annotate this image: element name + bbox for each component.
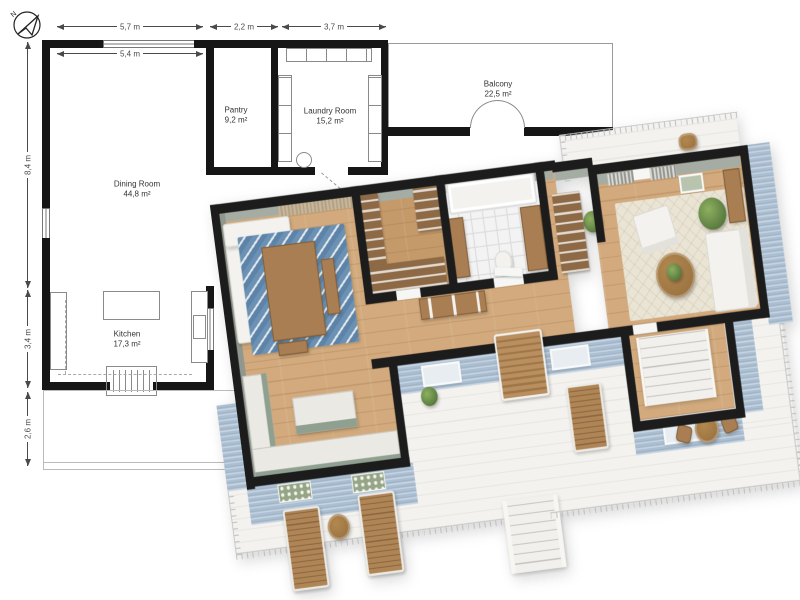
deck-stairs (502, 494, 567, 574)
floor-plan-canvas: N 5,7 m 2,2 m 3,7 m 5,4 m 8,4 m 3,4 m 2,… (0, 0, 800, 600)
room-area: 44,8 m² (114, 190, 160, 200)
room-area: 15,2 m² (304, 117, 356, 127)
laundry-counter-top (286, 48, 372, 62)
wall-pantry-laundry (271, 48, 278, 174)
wall-top-left (42, 40, 104, 48)
wall-balcony-left (385, 127, 470, 136)
room-name: Dining Room (114, 180, 160, 190)
room-name: Pantry (224, 106, 247, 116)
kitchen-island (292, 390, 357, 434)
dimension-label: 3,7 m (321, 23, 347, 32)
room-label-pantry: Pantry 9,2 m² (224, 106, 247, 127)
dimension-left-3: 2,6 m (27, 392, 28, 466)
kitchen-dashed-v (65, 300, 66, 374)
room-area: 22,5 m² (484, 90, 512, 100)
dimension-label: 2,2 m (231, 23, 257, 32)
wall-left-lower (42, 238, 50, 390)
kitchen-dashed-h (58, 374, 192, 375)
laundry-cabinet-left (278, 75, 292, 162)
wall-top-right (194, 40, 388, 48)
kitchen-sink-2d (193, 315, 206, 339)
wall-pantry-bottom (206, 167, 278, 175)
kitchen-island-2d (103, 291, 160, 320)
deck-outline-2d-inner (43, 462, 250, 463)
dimension-label: 2,6 m (24, 416, 33, 442)
dimension-left-1: 8,4 m (27, 42, 28, 288)
balcony-door-arc-right (497, 100, 525, 128)
room-label-kitchen: Kitchen 17,3 m² (113, 330, 140, 351)
wall-dining-pantry (206, 48, 214, 174)
wall-laundry-right (381, 40, 388, 175)
room-area: 9,2 m² (224, 116, 247, 126)
dimension-label: 5,4 m (117, 50, 143, 59)
room-label-laundry: Laundry Room 15,2 m² (304, 107, 356, 128)
room-name: Kitchen (113, 330, 140, 340)
balcony-door-arc-left (470, 100, 498, 128)
wall-laundry-bottom-left (271, 167, 315, 175)
patio-chair-1 (675, 424, 693, 445)
laundry-sink (296, 152, 312, 168)
wall-left-upper (42, 40, 50, 208)
compass-icon: N (10, 7, 44, 41)
balcony-outline-left (388, 43, 389, 127)
balcony-outline-right (612, 43, 613, 127)
laundry-cabinet-right (368, 75, 382, 162)
room-name: Balcony (484, 80, 512, 90)
room-area: 17,3 m² (113, 340, 140, 350)
bath-door-panel (494, 267, 522, 277)
dimension-top-3: 3,7 m (282, 26, 386, 27)
deck-arbor (493, 329, 550, 402)
living-window (633, 168, 651, 181)
balcony-outline-top (388, 43, 612, 44)
dimension-top-2: 2,2 m (210, 26, 278, 27)
room-label-balcony: Balcony 22,5 m² (484, 80, 512, 101)
dimension-inner-top: 5,4 m (57, 53, 203, 54)
dimension-label: 5,7 m (117, 23, 143, 32)
dimension-left-2: 3,4 m (27, 290, 28, 388)
dimension-top-1: 5,7 m (57, 26, 203, 27)
window-left (42, 208, 50, 240)
dimension-label: 3,4 m (24, 326, 33, 352)
room-name: Laundry Room (304, 107, 356, 117)
room-label-dining: Dining Room 44,8 m² (114, 180, 160, 201)
interior-stairs (636, 329, 717, 407)
wall-art (678, 173, 704, 194)
window-top (103, 40, 196, 48)
dimension-label: 8,4 m (24, 152, 33, 178)
